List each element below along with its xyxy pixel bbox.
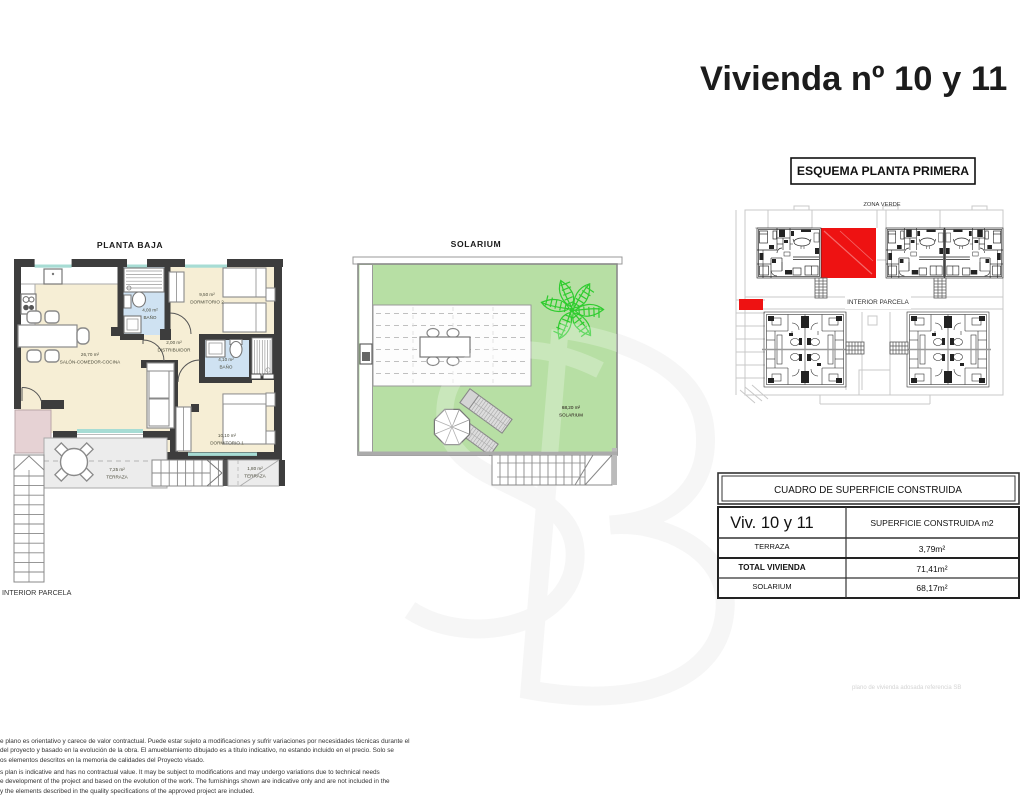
- svg-text:CUADRO DE SUPERFICIE CONSTRUID: CUADRO DE SUPERFICIE CONSTRUIDA: [774, 485, 962, 496]
- svg-text:TERRAZA: TERRAZA: [244, 474, 266, 479]
- svg-text:DORMITORIO 1: DORMITORIO 1: [210, 441, 244, 446]
- svg-text:7,25 m²: 7,25 m²: [109, 467, 125, 472]
- svg-text:SOLARIUM: SOLARIUM: [451, 239, 502, 249]
- svg-text:10,10 m²: 10,10 m²: [218, 433, 237, 438]
- svg-text:Vivienda nº 10 y 11: Vivienda nº 10 y 11: [700, 60, 1007, 98]
- svg-text:SALÓN-COMEDOR-COCINA: SALÓN-COMEDOR-COCINA: [60, 359, 121, 365]
- svg-text:TERRAZA: TERRAZA: [106, 475, 128, 480]
- svg-text:INTERIOR PARCELA: INTERIOR PARCELA: [2, 588, 72, 597]
- svg-text:DORMITORIO 2: DORMITORIO 2: [190, 300, 224, 305]
- svg-text:TERRAZA: TERRAZA: [754, 542, 789, 551]
- svg-text:ZONA VERDE: ZONA VERDE: [863, 202, 900, 208]
- svg-text:68,20 m²: 68,20 m²: [562, 405, 581, 410]
- svg-text:3,79m²: 3,79m²: [919, 544, 946, 554]
- svg-text:SOLARIUM: SOLARIUM: [559, 413, 583, 418]
- svg-text:PLANTA BAJA: PLANTA BAJA: [97, 240, 163, 250]
- svg-text:DISTRIBUIDOR: DISTRIBUIDOR: [158, 348, 192, 353]
- svg-text:9,50 m²: 9,50 m²: [199, 292, 215, 297]
- svg-text:1,80 m²: 1,80 m²: [247, 466, 263, 471]
- svg-text:INTERIOR PARCELA: INTERIOR PARCELA: [847, 299, 909, 306]
- svg-text:4,00 m²: 4,00 m²: [142, 308, 158, 313]
- svg-text:ESQUEMA PLANTA PRIMERA: ESQUEMA PLANTA PRIMERA: [797, 164, 969, 178]
- svg-text:SOLARIUM: SOLARIUM: [752, 582, 791, 591]
- svg-text:BAÑO: BAÑO: [143, 314, 156, 320]
- svg-text:SUPERFICIE CONSTRUIDA m2: SUPERFICIE CONSTRUIDA m2: [870, 518, 994, 528]
- svg-text:68,17m²: 68,17m²: [916, 583, 947, 593]
- svg-text:2,00 m²: 2,00 m²: [166, 340, 182, 345]
- svg-text:TOTAL VIVIENDA: TOTAL VIVIENDA: [738, 563, 805, 572]
- svg-text:Viv. 10 y 11: Viv. 10 y 11: [730, 514, 813, 532]
- svg-text:71,41m²: 71,41m²: [916, 564, 947, 574]
- svg-text:plano de vivienda adosada refe: plano de vivienda adosada referencia SB: [852, 685, 961, 691]
- svg-text:BAÑO: BAÑO: [219, 364, 232, 370]
- svg-text:26,70 m²: 26,70 m²: [81, 352, 100, 357]
- svg-text:4,10 m²: 4,10 m²: [218, 357, 234, 362]
